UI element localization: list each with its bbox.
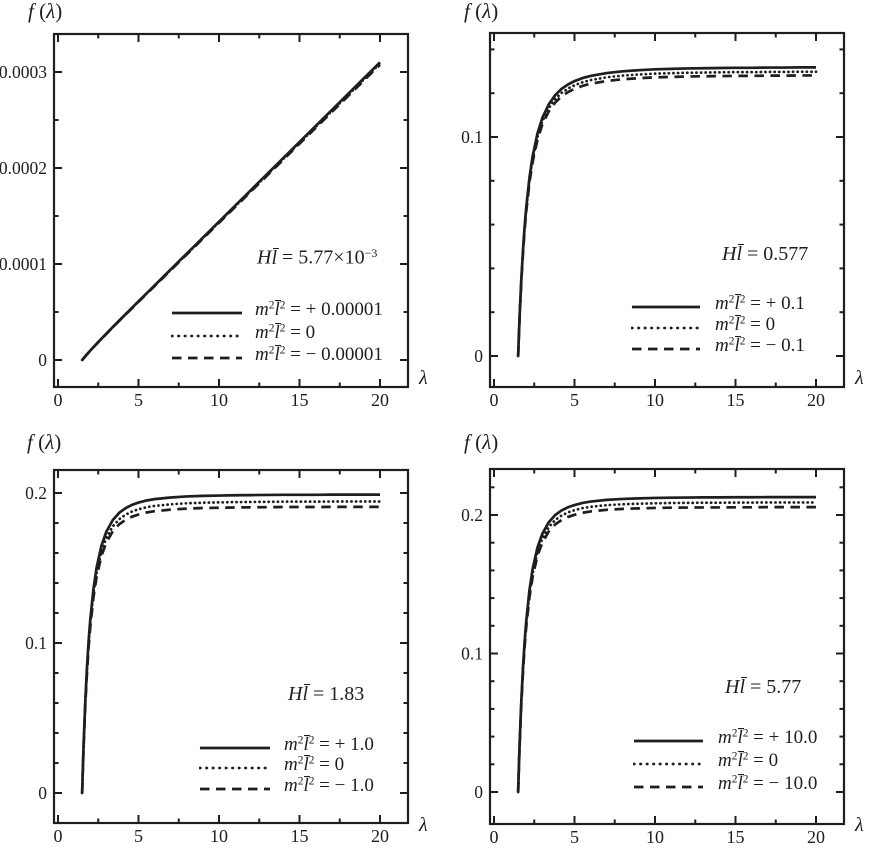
panel-bottom-left: 0510152000.10.2 f (λ) λ Hl = 1.83 m2l2 =… — [0, 424, 436, 849]
annotation-hl-value: Hl = 5.77×10−3 — [257, 247, 377, 268]
text-segment: ( — [470, 0, 482, 23]
text-segment: m — [715, 314, 729, 335]
x-tick-label: 15 — [727, 390, 745, 410]
text-segment: l — [734, 335, 739, 356]
axes-box — [490, 33, 844, 387]
y-axis-label: f (λ) — [27, 432, 61, 453]
x-tick-label: 20 — [371, 390, 389, 410]
x-tick-label: 0 — [490, 827, 499, 847]
text-segment: l — [302, 683, 308, 705]
figure: 0510152000.00010.00020.0003 f (λ) λ Hl =… — [0, 0, 872, 849]
text-segment: = − 0.1 — [745, 335, 804, 356]
text-segment: = 0 — [745, 314, 775, 335]
text-segment: λ — [45, 430, 54, 454]
text-segment: m — [284, 734, 298, 755]
legend-line-dashed — [199, 785, 271, 793]
x-tick-label: 10 — [210, 390, 228, 410]
y-axis-label: f (λ) — [464, 432, 498, 453]
text-segment: l — [734, 314, 739, 335]
annotation-hl-value: Hl = 1.83 — [288, 684, 364, 704]
legend-label: m2l2 = 0 — [715, 315, 775, 334]
text-segment: = − 1.0 — [314, 775, 373, 796]
y-tick-label: 0 — [38, 783, 47, 803]
legend-label: m2l2 = + 0.1 — [715, 294, 805, 313]
y-tick-label: 0.0002 — [0, 158, 47, 178]
legend-label: m2l2 = 0 — [284, 755, 344, 774]
text-segment: λ — [855, 367, 864, 389]
x-tick-label: 20 — [371, 826, 389, 846]
text-segment: m — [255, 299, 269, 320]
text-segment: l — [737, 750, 742, 771]
x-tick-label: 5 — [134, 390, 143, 410]
text-segment: ( — [34, 0, 46, 23]
x-axis-label: λ — [855, 368, 864, 388]
text-segment: = 0 — [748, 750, 778, 771]
x-tick-label: 20 — [807, 390, 825, 410]
panel-top-right: 0510152000.1 f (λ) λ Hl = 0.577 m2l2 = +… — [436, 0, 872, 425]
text-segment: l — [303, 734, 308, 755]
x-tick-label: 10 — [646, 390, 664, 410]
text-segment: λ — [419, 814, 428, 836]
y-tick-label: 0 — [474, 782, 483, 802]
legend-label: m2l2 = 0 — [255, 323, 315, 342]
text-segment: l — [274, 344, 279, 365]
curve-dotted — [518, 502, 816, 792]
legend-line-dashed — [631, 345, 701, 353]
text-segment: m — [715, 293, 729, 314]
text-segment: l — [303, 754, 308, 775]
y-tick-label: 0 — [38, 350, 47, 370]
text-segment: = 0.577 — [742, 243, 808, 265]
text-segment: −3 — [365, 246, 378, 260]
text-segment: m — [715, 335, 729, 356]
text-segment: l — [739, 676, 745, 698]
x-tick-label: 10 — [646, 827, 664, 847]
x-axis-label: λ — [855, 815, 864, 835]
x-axis-label: λ — [419, 815, 428, 835]
text-segment: m — [718, 773, 732, 794]
y-tick-label: 0.2 — [25, 483, 47, 503]
legend-label: m2l2 = − 0.1 — [715, 336, 805, 355]
text-segment: H — [257, 247, 271, 269]
x-tick-label: 10 — [210, 826, 228, 846]
text-segment: ) — [55, 0, 62, 23]
text-segment: = + 0.00001 — [285, 299, 382, 320]
y-tick-label: 0.1 — [461, 127, 483, 147]
text-segment: H — [288, 683, 302, 705]
text-segment: l — [734, 293, 739, 314]
legend-label: m2l2 = − 10.0 — [718, 774, 817, 793]
text-segment: = 5.77×10 — [277, 247, 365, 269]
text-segment: m — [255, 344, 269, 365]
text-segment: l — [274, 322, 279, 343]
text-segment: m — [284, 775, 298, 796]
text-segment: = − 0.00001 — [285, 344, 382, 365]
text-segment: λ — [855, 814, 864, 836]
y-tick-label: 0.0003 — [0, 62, 47, 82]
text-segment: ( — [470, 430, 482, 454]
x-tick-label: 0 — [54, 826, 63, 846]
legend-line-dotted — [199, 764, 271, 772]
text-segment: l — [737, 727, 742, 748]
axes-box — [490, 469, 844, 824]
legend-label: m2l2 = 0 — [718, 751, 778, 770]
legend-line-solid — [199, 744, 271, 752]
text-segment: H — [725, 676, 739, 698]
legend-line-dotted — [171, 332, 243, 340]
y-tick-label: 0.0001 — [0, 254, 47, 274]
text-segment: λ — [419, 367, 428, 389]
text-segment: = 1.83 — [308, 683, 364, 705]
plot-area: 0510152000.1 — [436, 0, 872, 425]
text-segment: ) — [54, 430, 61, 454]
x-axis-label: λ — [419, 368, 428, 388]
legend-line-dashed — [171, 354, 243, 362]
text-segment: m — [255, 322, 269, 343]
annotation-hl-value: Hl = 5.77 — [725, 677, 801, 697]
text-segment: m — [284, 754, 298, 775]
text-segment: l — [303, 775, 308, 796]
legend-label: m2l2 = + 0.00001 — [255, 300, 383, 319]
panel-top-left: 0510152000.00010.00020.0003 f (λ) λ Hl =… — [0, 0, 436, 425]
x-tick-label: 15 — [291, 826, 309, 846]
text-segment: λ — [482, 430, 491, 454]
x-tick-label: 0 — [54, 390, 63, 410]
text-segment: = + 10.0 — [748, 727, 817, 748]
text-segment: m — [718, 750, 732, 771]
legend-label: m2l2 = + 1.0 — [284, 735, 374, 754]
legend-label: m2l2 = + 10.0 — [718, 728, 817, 747]
text-segment: λ — [482, 0, 491, 23]
x-tick-label: 15 — [291, 390, 309, 410]
legend-line-solid — [631, 303, 701, 311]
y-axis-label: f (λ) — [28, 1, 62, 22]
text-segment: ( — [33, 430, 45, 454]
legend-label: m2l2 = − 1.0 — [284, 776, 374, 795]
x-tick-label: 20 — [807, 827, 825, 847]
legend-line-dashed — [633, 783, 704, 791]
legend-label: m2l2 = − 0.00001 — [255, 345, 383, 364]
x-tick-label: 5 — [134, 826, 143, 846]
text-segment: l — [736, 243, 742, 265]
text-segment: l — [737, 773, 742, 794]
text-segment: = 5.77 — [745, 676, 801, 698]
legend-line-solid — [171, 309, 243, 317]
text-segment: H — [722, 243, 736, 265]
annotation-hl-value: Hl = 0.577 — [722, 244, 808, 264]
text-segment: ) — [491, 0, 498, 23]
panel-bottom-right: 0510152000.10.2 f (λ) λ Hl = 5.77 m2l2 =… — [436, 424, 872, 849]
text-segment: l — [274, 299, 279, 320]
x-tick-label: 5 — [570, 390, 579, 410]
y-axis-label: f (λ) — [464, 1, 498, 22]
x-tick-label: 5 — [570, 827, 579, 847]
y-tick-label: 0 — [474, 346, 483, 366]
text-segment: l — [271, 247, 277, 269]
legend-line-dotted — [631, 324, 701, 332]
text-segment: ) — [491, 430, 498, 454]
text-segment: = + 1.0 — [314, 734, 373, 755]
text-segment: m — [718, 727, 732, 748]
text-segment: = + 0.1 — [745, 293, 804, 314]
text-segment: λ — [46, 0, 55, 23]
x-tick-label: 15 — [727, 827, 745, 847]
y-tick-label: 0.1 — [25, 633, 47, 653]
y-tick-label: 0.2 — [461, 505, 483, 525]
x-tick-label: 0 — [490, 390, 499, 410]
legend-line-solid — [633, 737, 704, 745]
text-segment: = − 10.0 — [748, 773, 817, 794]
y-tick-label: 0.1 — [461, 644, 483, 664]
legend-line-dotted — [633, 760, 704, 768]
text-segment: = 0 — [314, 754, 344, 775]
text-segment: = 0 — [285, 322, 315, 343]
